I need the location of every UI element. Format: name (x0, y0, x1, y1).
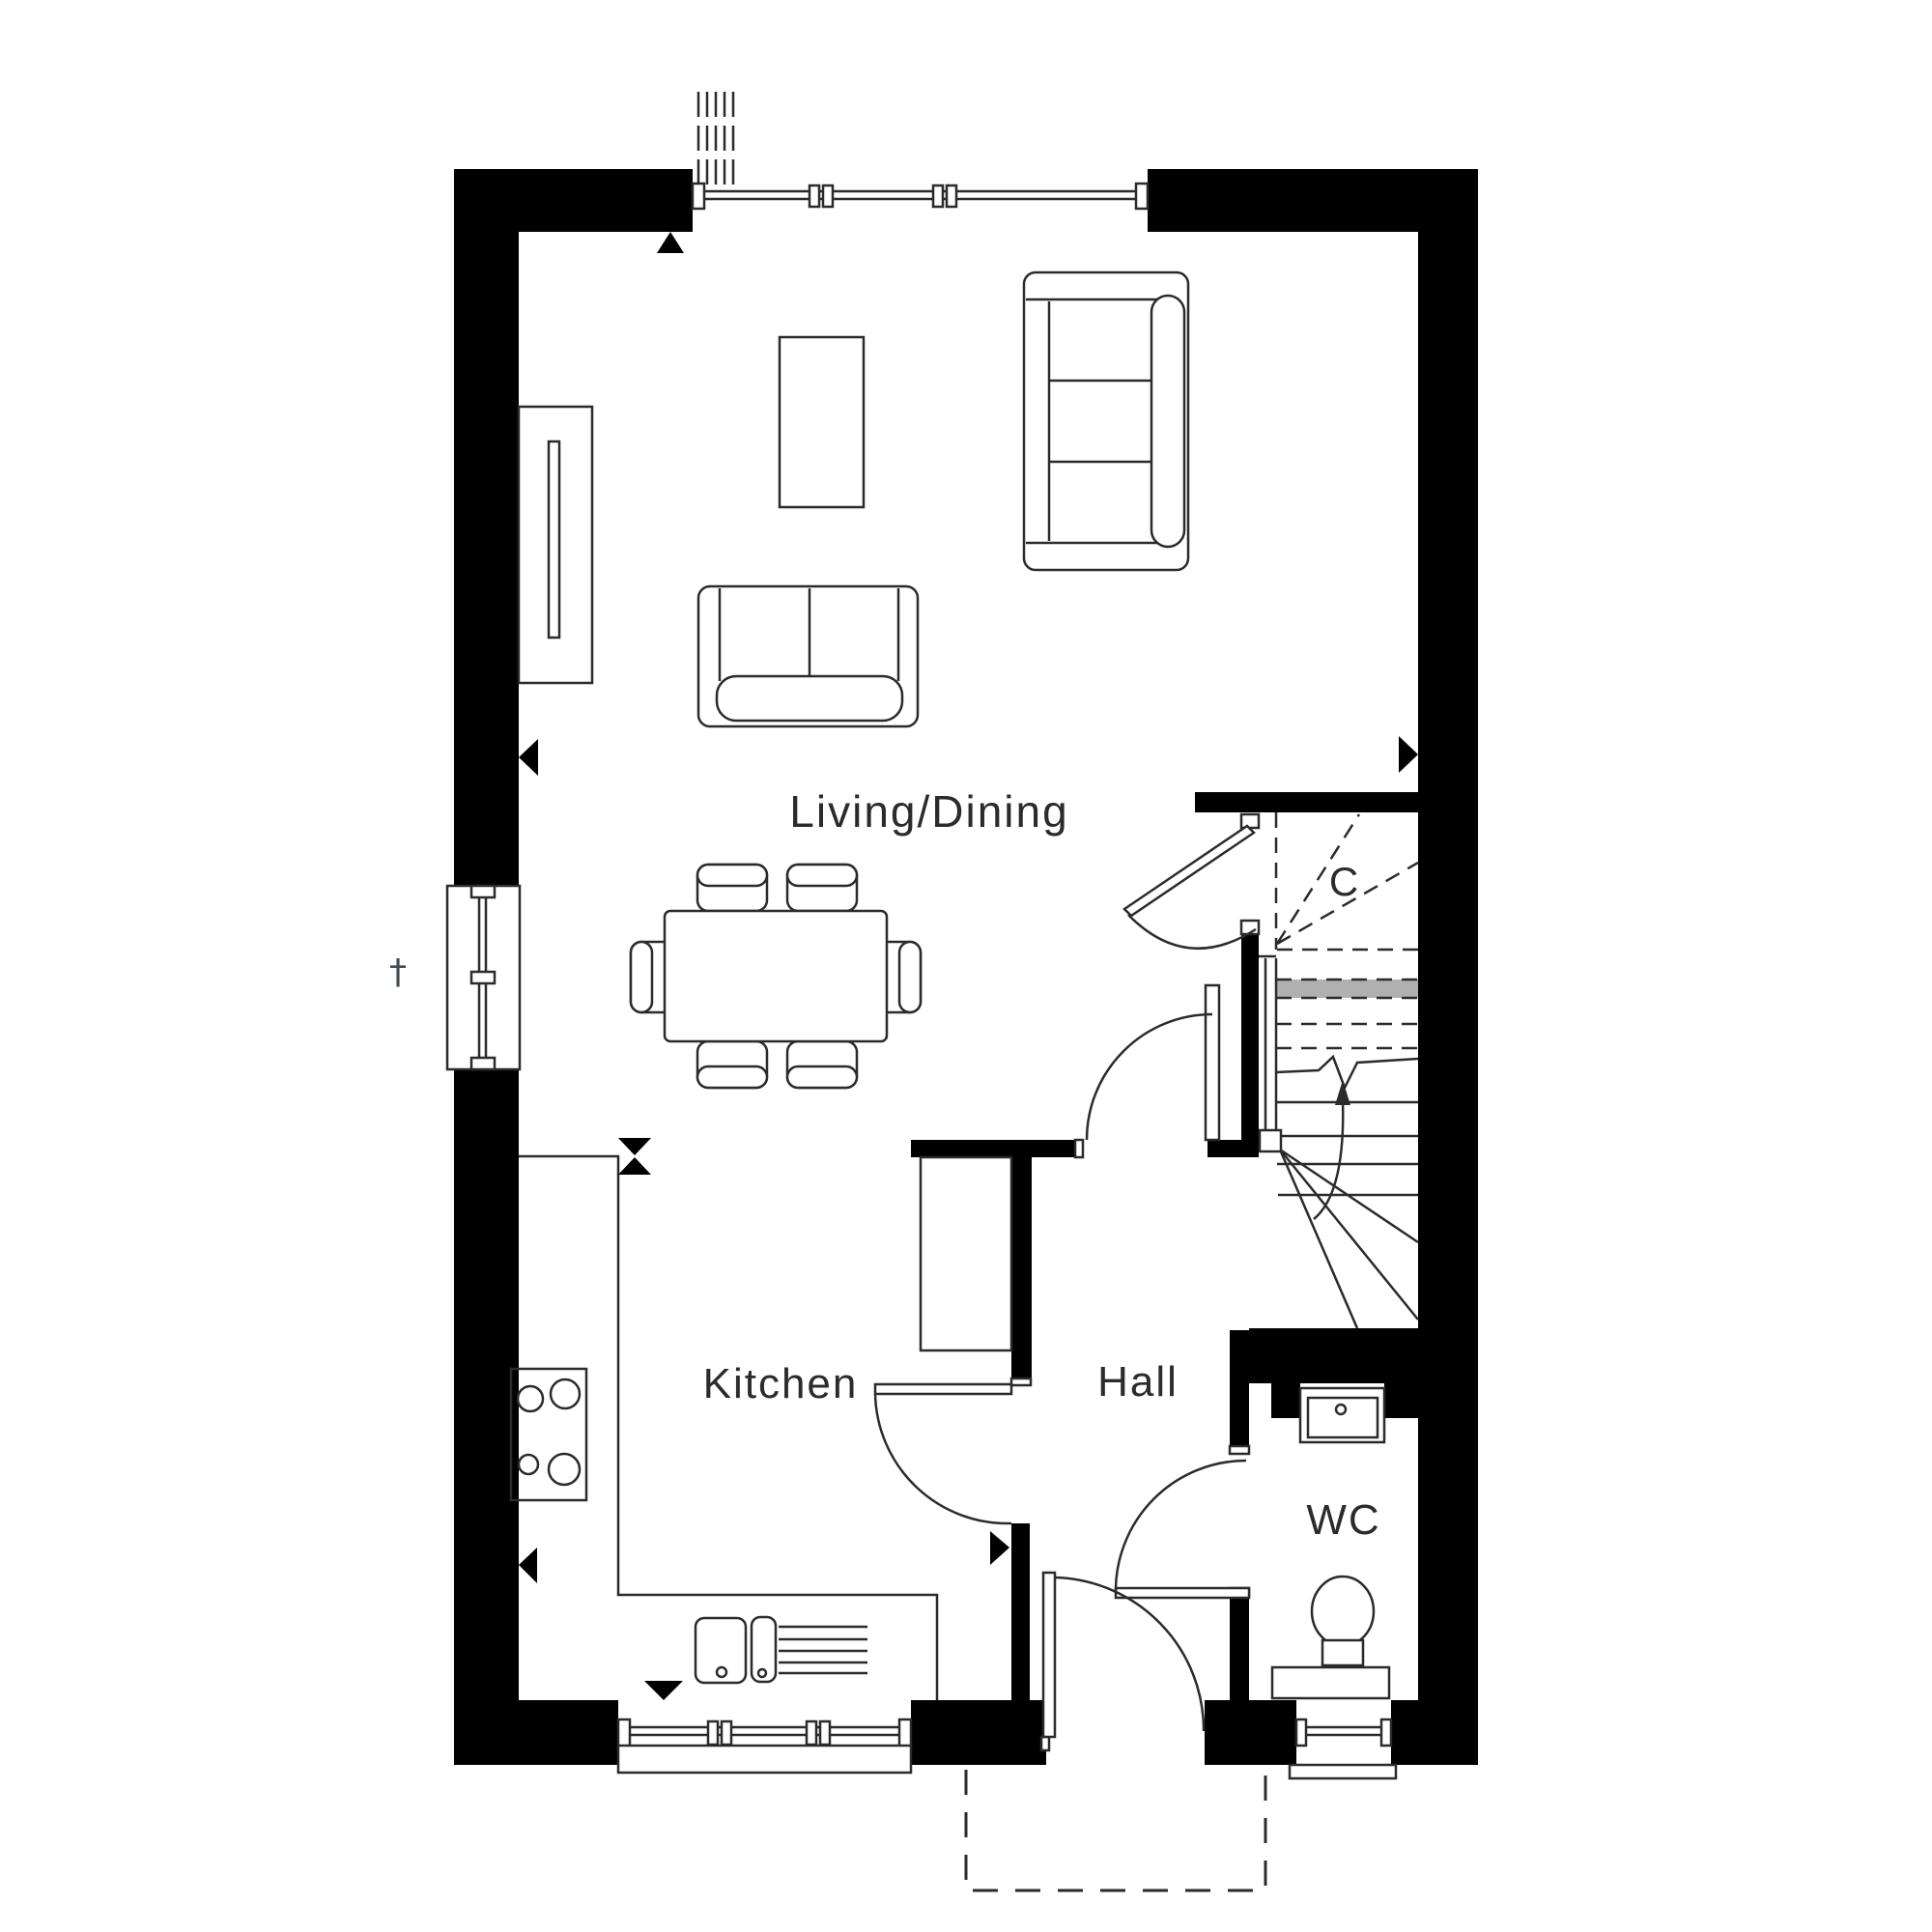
window-wc-sill (1290, 1765, 1396, 1778)
door-living (1075, 985, 1219, 1157)
marker-triangle-up-top (657, 232, 684, 253)
dining-chair-bottom-1-back (697, 1066, 767, 1088)
dining-chair-left-back (631, 942, 652, 1012)
wall-wc-left-lower (1230, 1596, 1249, 1700)
stairs-winder-2 (1280, 1150, 1418, 1320)
porch-dashed-outline (966, 1766, 1265, 1890)
window-top (693, 184, 1148, 209)
sofa-two-seat (698, 586, 918, 726)
floor-plan-page: Living/DiningKitchenHallWCC† (0, 0, 1932, 1932)
wall-cupboard-head (1195, 792, 1418, 812)
wall-stair-side (1241, 927, 1259, 1150)
door-cupboard (1124, 814, 1259, 949)
stairs-landing-band (1276, 980, 1418, 998)
wall-wc-basin-return-left (1271, 1383, 1300, 1418)
dining-chair-right-back (899, 942, 921, 1012)
door-wc (1116, 1446, 1249, 1598)
wall-wc-basin-return-right (1384, 1383, 1418, 1418)
door-front (1041, 1573, 1204, 1750)
wall-top-right (1148, 169, 1478, 232)
stairs-break-line (1276, 1057, 1418, 1088)
kitchen-tall-unit (921, 1157, 1011, 1350)
wall-bottom-wc-right (1391, 1700, 1478, 1765)
door-kitchen (875, 1378, 1031, 1523)
marker-triangle-left-kitchen (519, 1548, 537, 1583)
annotation-dagger: † (389, 952, 407, 992)
room-label-wc: WC (1306, 1496, 1380, 1544)
wall-kitchen-hall-horizontal (911, 1140, 1077, 1157)
marker-triangle-left-living (519, 739, 538, 776)
wall-bottom-kitchen-corner (454, 1700, 618, 1765)
wall-left-lower (454, 1069, 519, 1765)
window-kitchen-sill (618, 1746, 911, 1773)
wall-right (1418, 232, 1478, 1765)
window-kitchen (618, 1719, 911, 1773)
wall-kitchen-hall-vertical (1011, 1157, 1032, 1379)
wall-wc-top (1249, 1328, 1418, 1383)
media-unit (519, 407, 592, 683)
kitchen-sink (696, 1617, 867, 1683)
marker-triangle-right-hall (990, 1531, 1009, 1565)
room-label-cupboard: C (1329, 859, 1360, 904)
floor-plan-drawing: Living/DiningKitchenHallWCC† (0, 0, 1932, 1932)
wall-bottom-centre (911, 1700, 1046, 1765)
sofa-three-seat (1024, 272, 1188, 570)
window-left (447, 886, 520, 1069)
dining-chair-top-1-back (697, 865, 767, 886)
window-wc (1290, 1719, 1396, 1778)
room-label-hall: Hall (1097, 1358, 1179, 1406)
boundary-hatch (698, 92, 733, 189)
dining-chair-bottom-2-back (787, 1066, 857, 1088)
marker-triangle-down-sink (644, 1681, 683, 1700)
dining-table (665, 911, 887, 1041)
room-label-kitchen: Kitchen (703, 1360, 859, 1407)
marker-triangle-right-living (1399, 736, 1418, 773)
dining-chair-top-2-back (787, 865, 857, 886)
kitchen-fittings (511, 1156, 1011, 1700)
wall-wc-left-upper (1230, 1330, 1249, 1446)
wall-bottom-frontdoor-right (1205, 1700, 1296, 1765)
wc-basin (1300, 1388, 1384, 1442)
wall-kitchen-hall-lower (1011, 1523, 1030, 1700)
room-label-living-dining: Living/Dining (789, 786, 1068, 837)
kitchen-hob (511, 1369, 586, 1500)
stairs-newel-post (1260, 1130, 1281, 1151)
wc-toilet (1272, 1577, 1389, 1698)
wall-left-upper (454, 169, 519, 886)
furniture (519, 272, 1188, 1088)
marker-bowtie (618, 1138, 651, 1175)
coffee-table (780, 337, 864, 507)
